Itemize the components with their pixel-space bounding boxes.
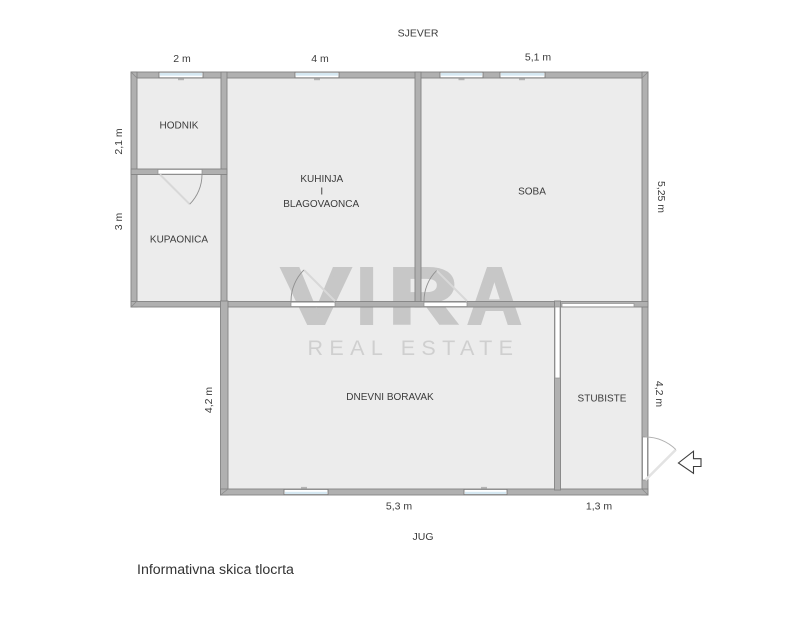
svg-text:5,3 m: 5,3 m	[386, 501, 413, 513]
svg-text:4,2 m: 4,2 m	[653, 381, 665, 408]
svg-text:5,1 m: 5,1 m	[525, 52, 552, 64]
svg-text:JUG: JUG	[413, 531, 434, 543]
svg-text:I: I	[357, 252, 377, 342]
svg-text:1,3 m: 1,3 m	[586, 501, 613, 513]
svg-text:SOBA: SOBA	[518, 187, 546, 198]
svg-text:R: R	[389, 251, 458, 341]
svg-text:KUPAONICA: KUPAONICA	[150, 235, 208, 246]
svg-text:BLAGOVAONCA: BLAGOVAONCA	[283, 199, 359, 210]
svg-text:STUBISTE: STUBISTE	[578, 394, 627, 405]
svg-text:4,2 m: 4,2 m	[203, 387, 215, 414]
svg-text:REAL ESTATE: REAL ESTATE	[308, 336, 514, 360]
svg-text:3 m: 3 m	[113, 213, 125, 231]
svg-text:HODNIK: HODNIK	[160, 121, 199, 132]
svg-text:Informativna skica tlocrta: Informativna skica tlocrta	[137, 562, 294, 578]
svg-text:A: A	[467, 252, 521, 341]
svg-text:2,1 m: 2,1 m	[113, 128, 125, 155]
svg-text:DNEVNI BORAVAK: DNEVNI BORAVAK	[346, 392, 434, 403]
svg-text:V: V	[282, 251, 351, 341]
svg-text:KUHINJA: KUHINJA	[300, 174, 343, 185]
svg-text:4 m: 4 m	[311, 53, 329, 65]
svg-text:5,25 m: 5,25 m	[655, 181, 667, 213]
svg-text:SJEVER: SJEVER	[398, 28, 439, 40]
svg-text:I: I	[320, 187, 323, 198]
svg-text:2 m: 2 m	[173, 53, 191, 65]
